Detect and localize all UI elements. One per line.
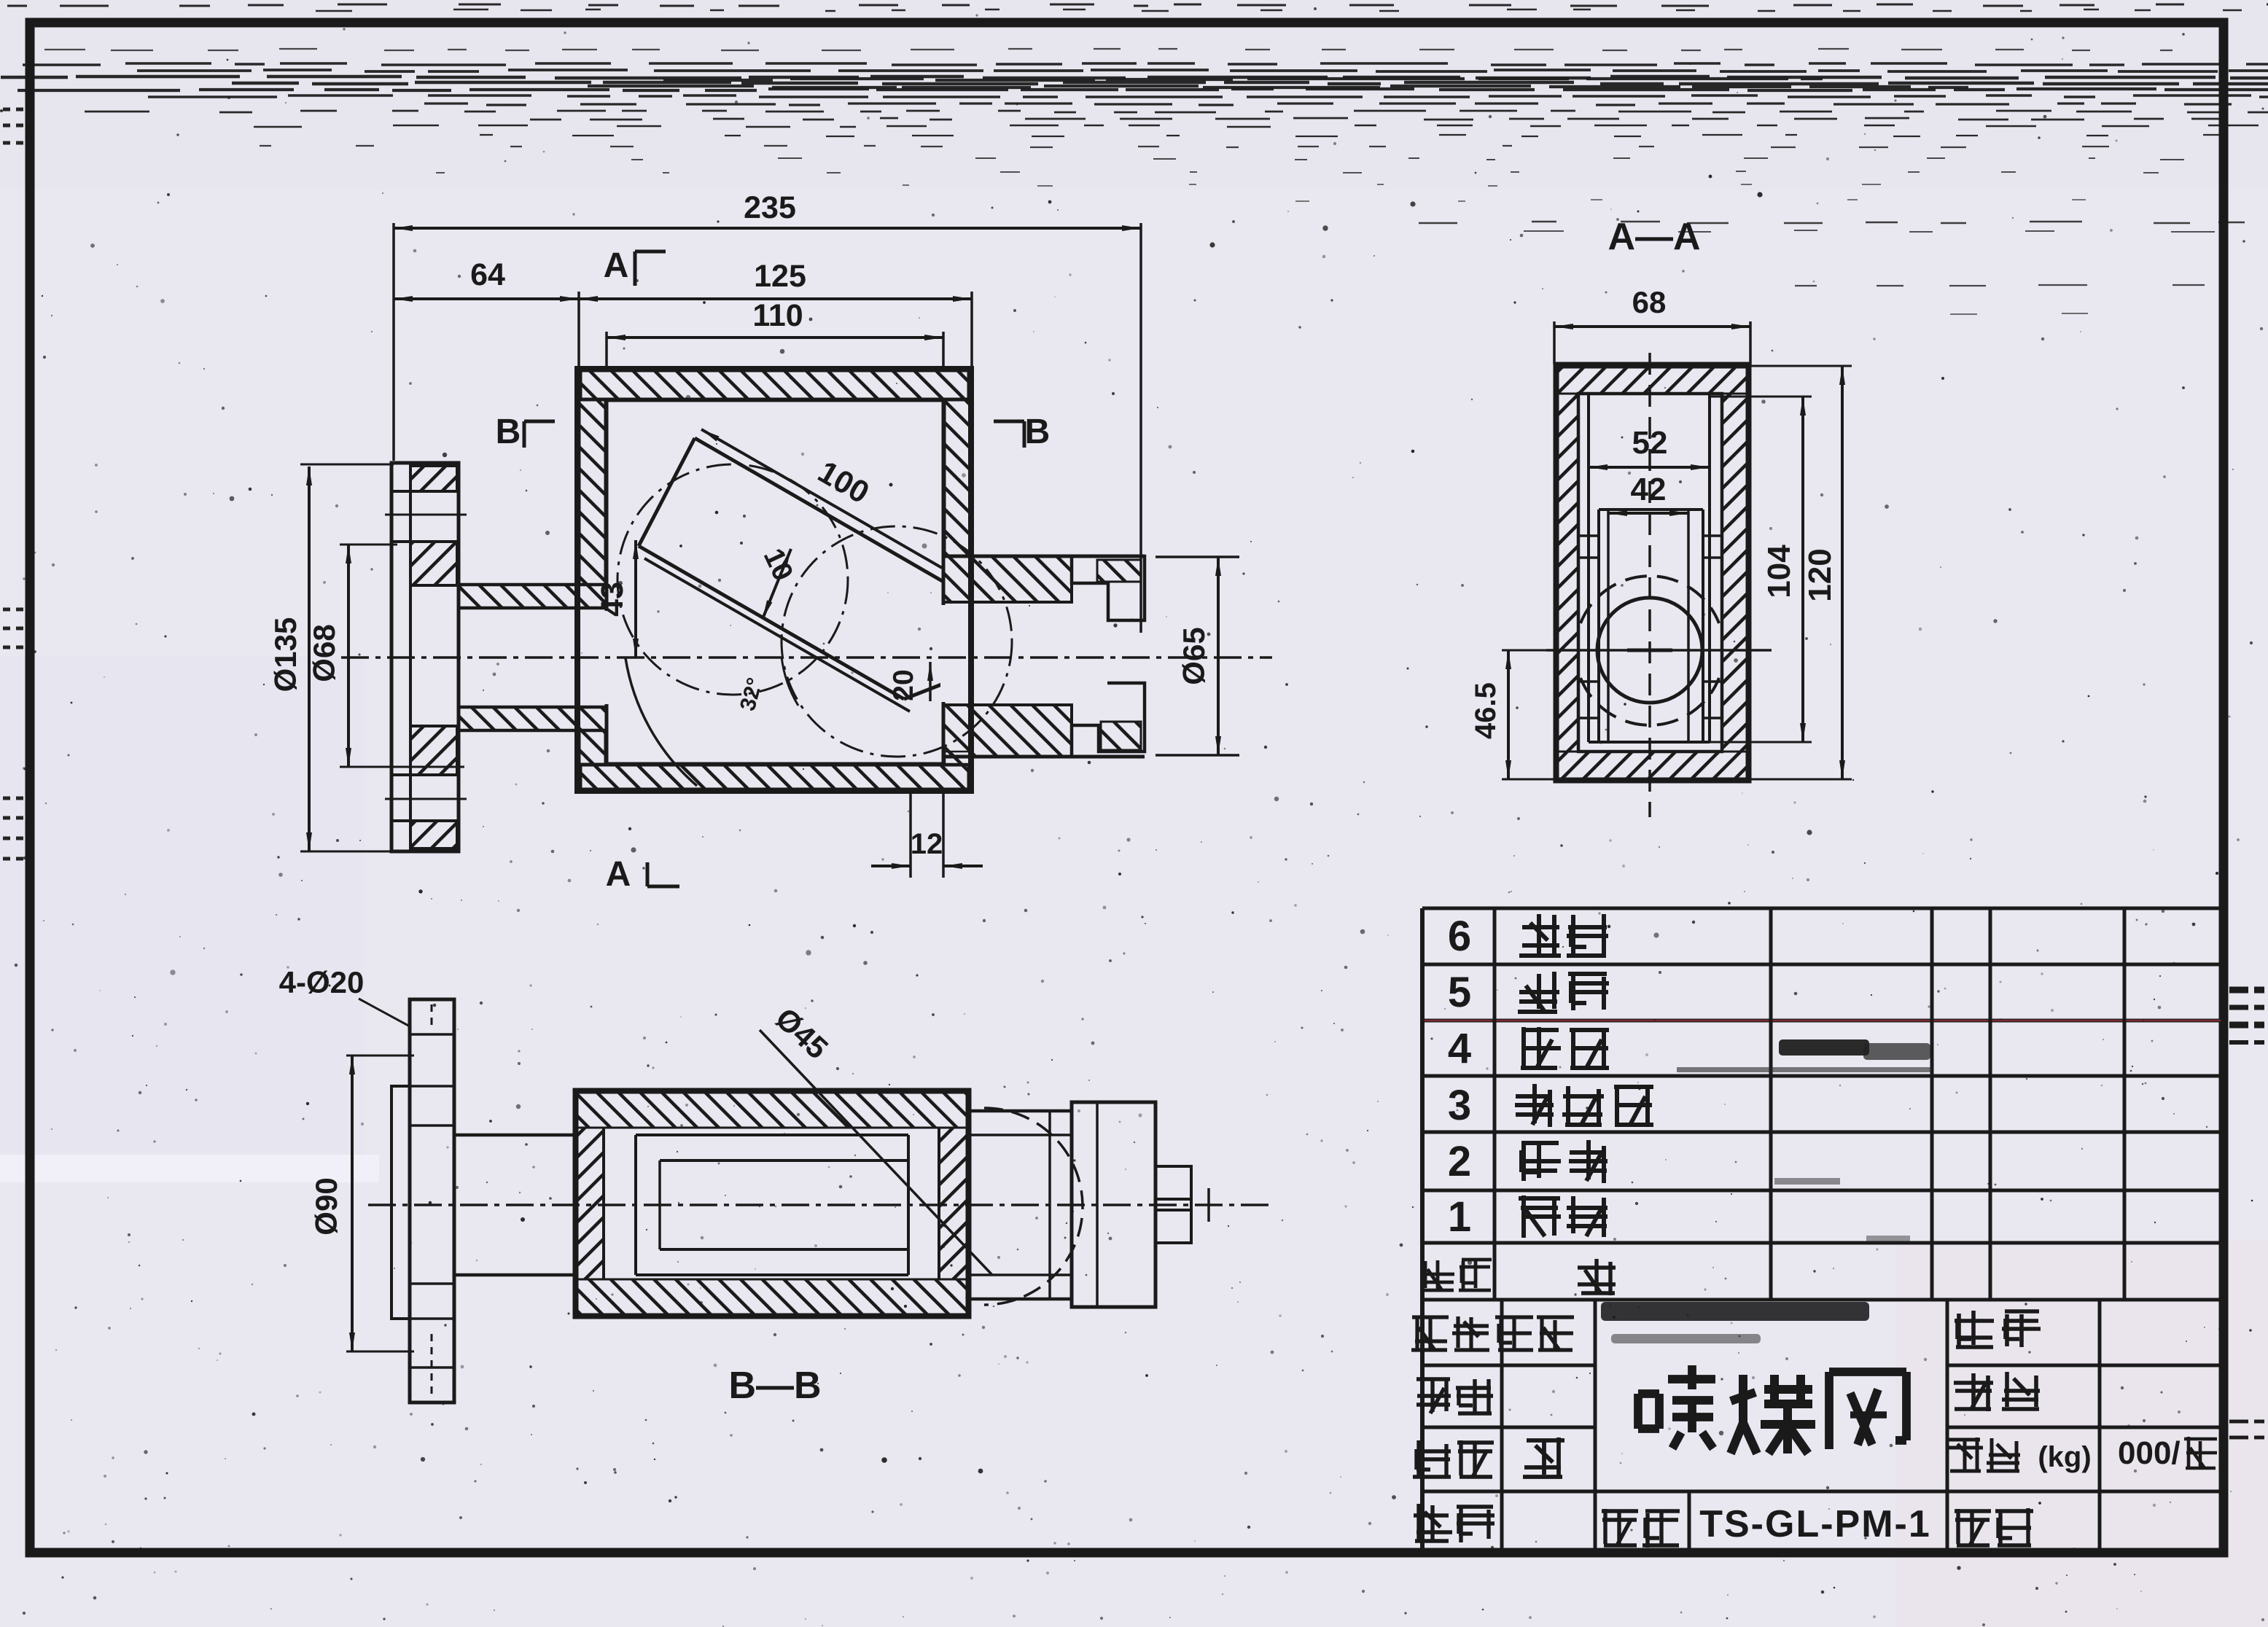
svg-text:Ø90: Ø90 (309, 1177, 343, 1235)
svg-text:5: 5 (1448, 969, 1471, 1016)
svg-text:120: 120 (1802, 548, 1838, 601)
svg-text:64: 64 (470, 257, 505, 292)
svg-text:104: 104 (1761, 545, 1797, 598)
svg-text:110: 110 (752, 298, 803, 333)
svg-text:Ø68: Ø68 (307, 624, 341, 682)
svg-text:TS-GL-PM-1: TS-GL-PM-1 (1699, 1503, 1931, 1545)
svg-text:B: B (496, 413, 521, 451)
svg-text:12: 12 (911, 828, 943, 860)
svg-text:68: 68 (1632, 285, 1667, 319)
svg-text:Ø65: Ø65 (1177, 627, 1211, 684)
svg-text:20: 20 (888, 669, 919, 701)
svg-text:43: 43 (595, 582, 630, 617)
svg-text:6: 6 (1448, 913, 1471, 960)
svg-text:42: 42 (1631, 472, 1667, 507)
svg-text:3: 3 (1448, 1082, 1471, 1129)
svg-text:4: 4 (1448, 1025, 1471, 1072)
svg-text:B—B: B—B (728, 1365, 821, 1407)
svg-text:B: B (1025, 413, 1051, 451)
svg-text:46.5: 46.5 (1470, 682, 1502, 739)
svg-text:Ø135: Ø135 (268, 617, 303, 692)
svg-text:4-Ø20: 4-Ø20 (279, 965, 365, 999)
svg-text:(kg): (kg) (2038, 1441, 2091, 1473)
svg-text:A—A: A—A (1608, 216, 1700, 258)
svg-text:235: 235 (744, 190, 796, 225)
svg-text:000/: 000/ (2118, 1435, 2181, 1471)
svg-text:A: A (606, 855, 631, 894)
svg-text:125: 125 (754, 259, 806, 294)
svg-text:1: 1 (1448, 1193, 1471, 1241)
svg-text:A: A (604, 246, 629, 285)
svg-text:2: 2 (1448, 1138, 1471, 1185)
